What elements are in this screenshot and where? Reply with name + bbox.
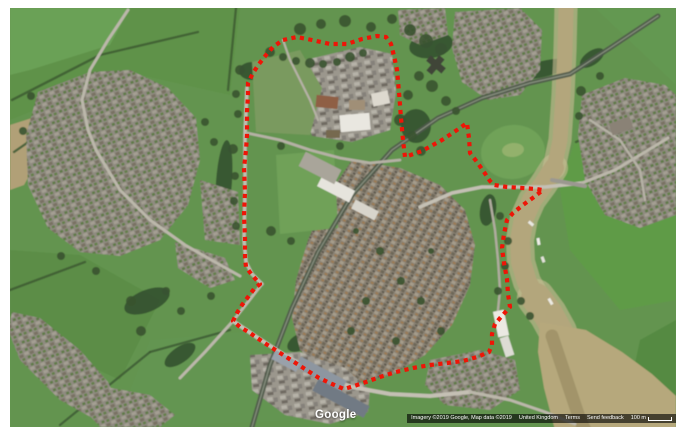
scene-layers — [10, 8, 676, 427]
google-logo[interactable]: Google — [315, 409, 356, 421]
map-viewport[interactable]: Google Imagery ©2019 Google, Map data ©2… — [10, 8, 676, 427]
send-feedback-link[interactable]: Send feedback — [587, 414, 624, 423]
attribution-imagery: Imagery ©2019 Google, Map data ©2019 — [411, 414, 512, 423]
scale-label: 100 m — [631, 414, 646, 423]
attribution-bar: Imagery ©2019 Google, Map data ©2019 Uni… — [407, 414, 676, 423]
scale-control[interactable]: 100 m — [631, 414, 672, 423]
satellite-scene — [10, 8, 676, 427]
terms-link[interactable]: Terms — [565, 414, 580, 423]
attribution-region: United Kingdom — [519, 414, 558, 423]
scale-bar — [648, 417, 672, 421]
map-screenshot: Google Imagery ©2019 Google, Map data ©2… — [0, 0, 686, 434]
